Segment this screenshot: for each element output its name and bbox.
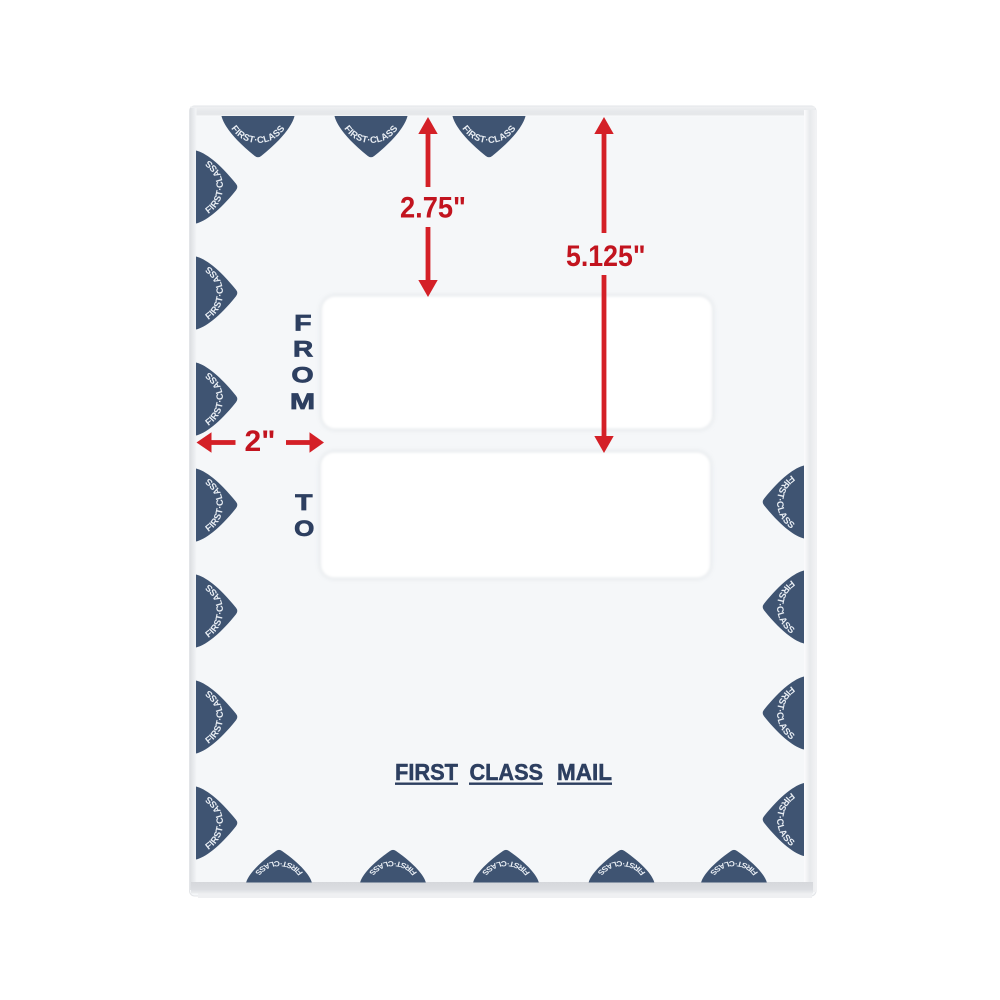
svg-text:FIRST: FIRST [395, 759, 458, 785]
svg-text:MAIL: MAIL [557, 759, 612, 785]
svg-text:2": 2" [245, 425, 276, 458]
svg-text:R: R [293, 337, 313, 362]
svg-text:2.75": 2.75" [400, 192, 466, 225]
svg-text:CLASS: CLASS [470, 759, 544, 785]
svg-text:O: O [291, 363, 313, 388]
svg-text:5.125": 5.125" [566, 240, 646, 273]
svg-text:O: O [294, 516, 314, 541]
svg-text:M: M [290, 389, 315, 414]
svg-text:F: F [294, 311, 312, 336]
svg-text:T: T [295, 490, 313, 515]
